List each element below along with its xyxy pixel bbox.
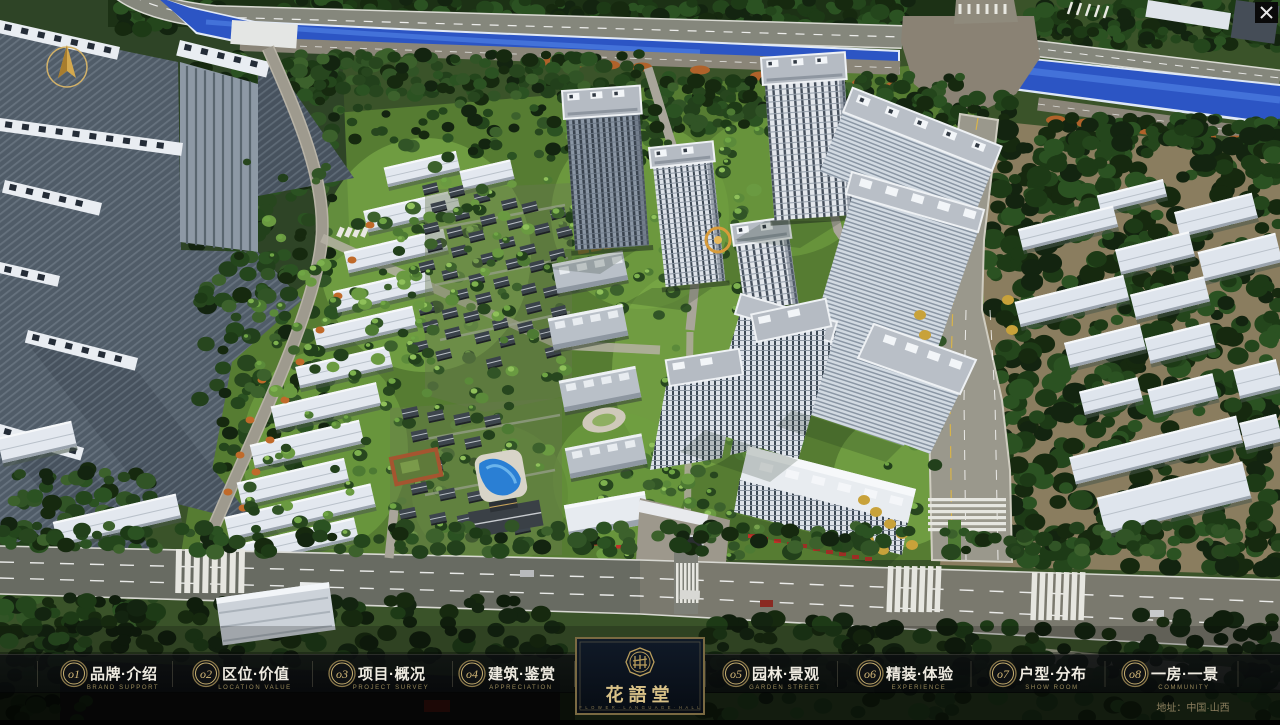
svg-text:项目·概况: 项目·概况 — [358, 665, 426, 683]
svg-text:EXPERIENCE: EXPERIENCE — [892, 685, 947, 691]
svg-text:COMMUNITY: COMMUNITY — [1158, 685, 1209, 691]
svg-text:一房·一景: 一房·一景 — [1151, 665, 1219, 683]
svg-text:APPRECIATION: APPRECIATION — [489, 685, 552, 691]
svg-text:BRAND SUPPORT: BRAND SUPPORT — [87, 685, 159, 691]
svg-text:o5: o5 — [730, 667, 742, 681]
svg-text:区位·价值: 区位·价值 — [222, 665, 290, 683]
svg-text:o2: o2 — [200, 667, 212, 681]
svg-text:o4: o4 — [466, 667, 478, 681]
svg-text:SHOW ROOM: SHOW ROOM — [1025, 685, 1078, 691]
svg-text:地址：中国·山西: 地址：中国·山西 — [1156, 701, 1229, 714]
svg-text:GARDEN STREET: GARDEN STREET — [749, 685, 821, 691]
svg-text:PROJECT SURVEY: PROJECT SURVEY — [353, 685, 430, 691]
svg-text:园林·景观: 园林·景观 — [752, 665, 820, 683]
svg-text:花語堂: 花語堂 — [606, 684, 675, 705]
svg-text:建筑·鉴赏: 建筑·鉴赏 — [488, 665, 556, 683]
svg-text:LOCATION VALUE: LOCATION VALUE — [218, 685, 292, 691]
svg-text:F L O W E R · L A N G U A G E: F L O W E R · L A N G U A G E · H A L L — [579, 705, 701, 710]
svg-text:精装·体验: 精装·体验 — [886, 665, 954, 683]
svg-text:o3: o3 — [336, 667, 348, 681]
svg-text:户型·分布: 户型·分布 — [1019, 665, 1087, 683]
svg-text:品牌·介绍: 品牌·介绍 — [90, 665, 158, 683]
svg-text:o1: o1 — [68, 667, 80, 681]
svg-text:o7: o7 — [997, 667, 1010, 681]
svg-text:o8: o8 — [1129, 667, 1141, 681]
svg-text:o6: o6 — [864, 667, 876, 681]
